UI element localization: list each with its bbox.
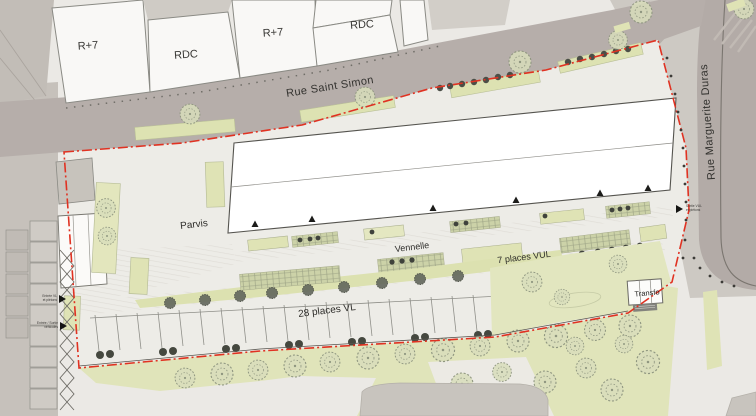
access-note-left-top: Entrée VL et piétons: [42, 295, 57, 303]
access-note-line: et piétons: [686, 209, 702, 213]
site-plan-canvas: R+7 RDC R+7 RDC Rue Saint Simon Rue Marg…: [0, 0, 756, 416]
building-label-r7-east: R+7: [262, 26, 283, 39]
access-arrow-right-icon: [676, 205, 683, 213]
building-label-r7-west: R+7: [77, 39, 98, 52]
access-note-line: véhicules: [37, 326, 58, 330]
access-arrow-left-top-icon: [59, 295, 66, 303]
access-note-left-bottom: Entrée / Sortie véhicules: [37, 322, 58, 330]
building-label-rdc-east: RDC: [350, 18, 375, 32]
site-plan-graphics: [0, 0, 756, 416]
building-label-rdc-west: RDC: [174, 48, 199, 62]
access-note-right: Sortie VUL et piétons: [686, 205, 702, 213]
access-arrow-left-bottom-icon: [60, 322, 67, 330]
access-note-line: et piétons: [42, 299, 57, 303]
